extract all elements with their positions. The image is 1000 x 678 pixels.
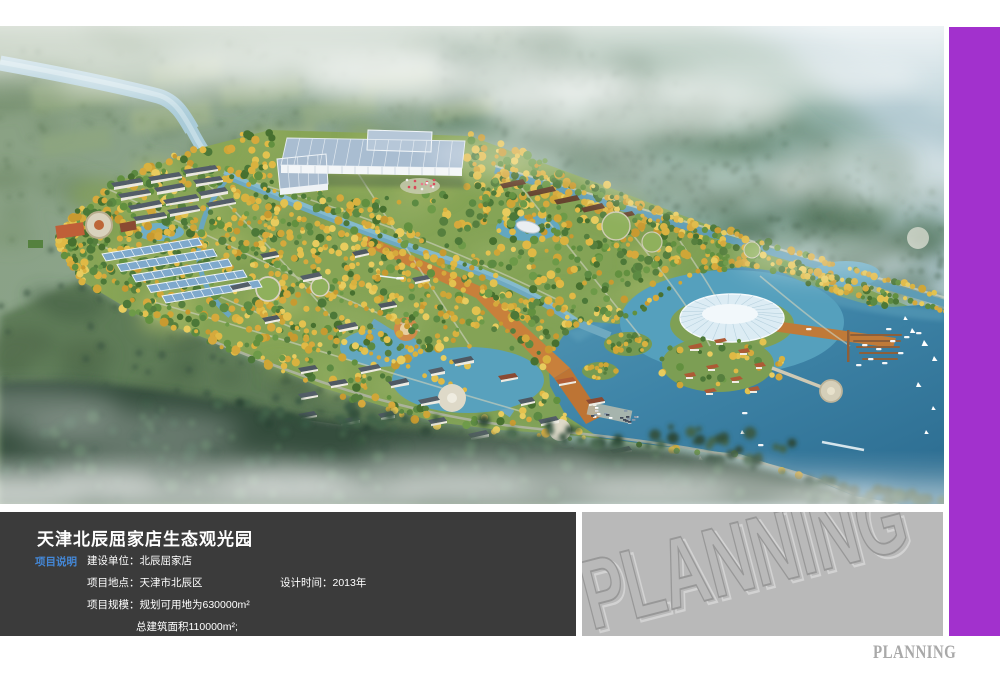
svg-text:PLANNING: PLANNING [582,512,918,636]
